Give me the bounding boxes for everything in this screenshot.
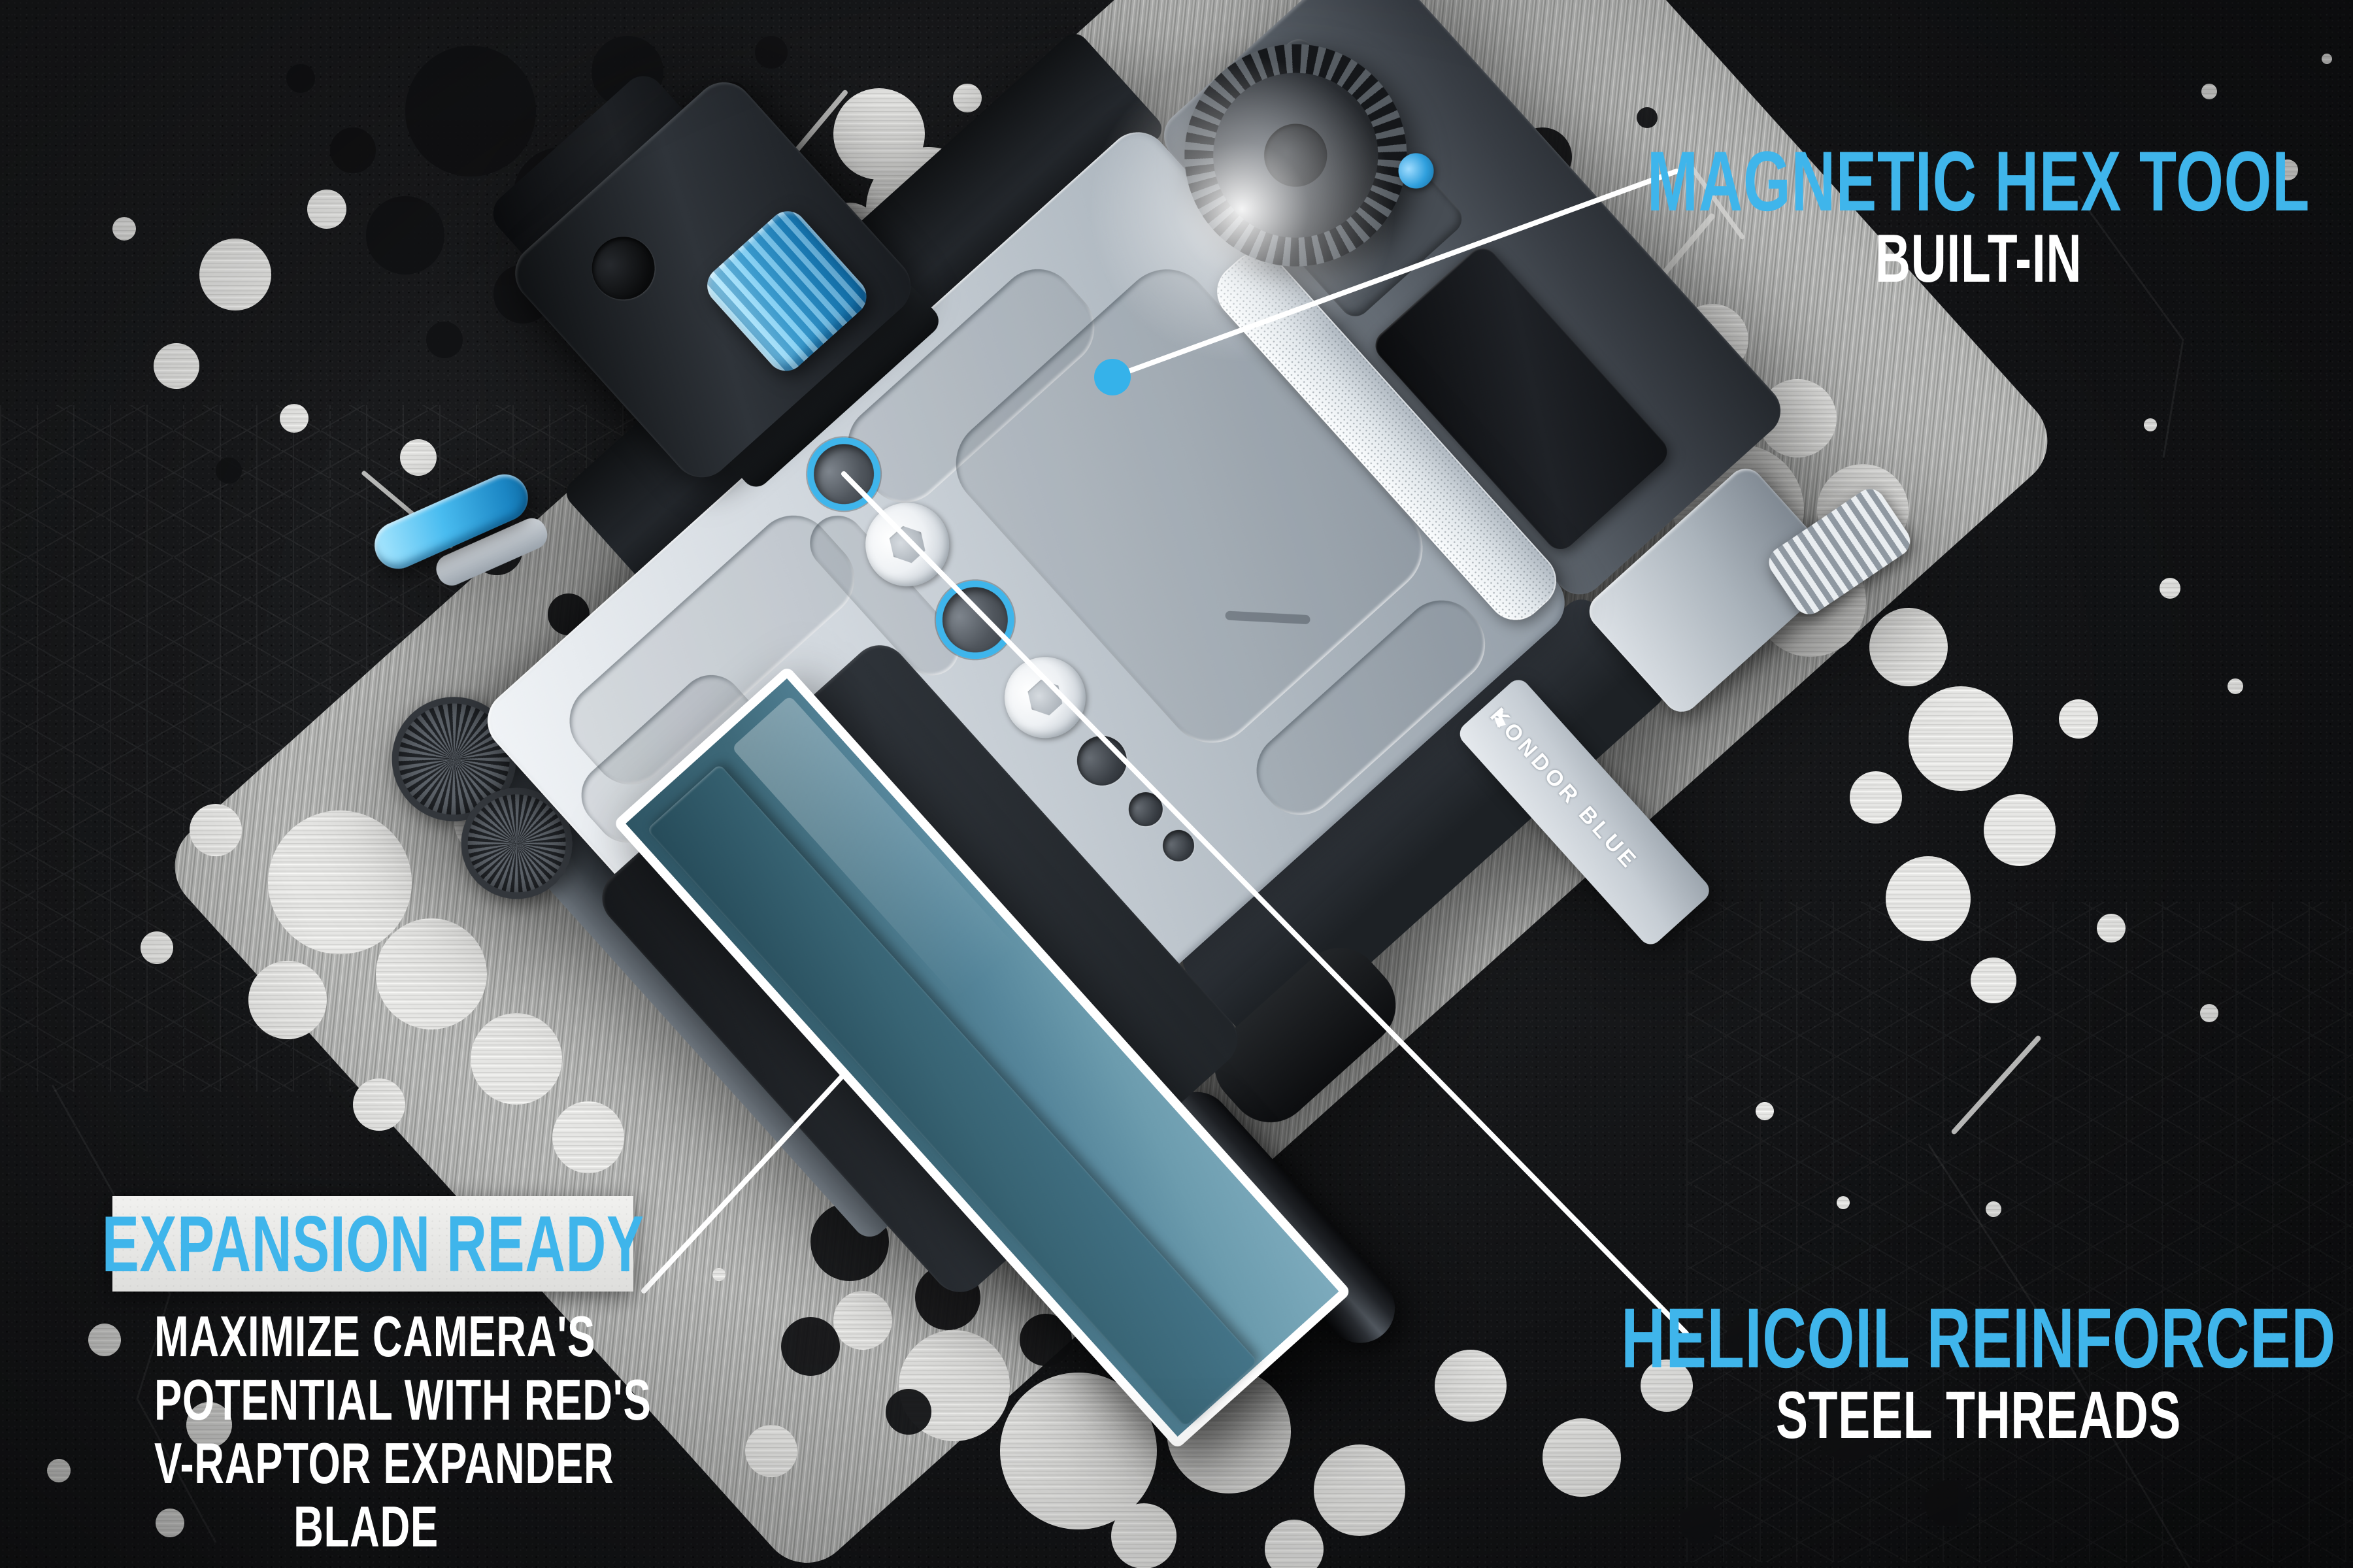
expansion-title: EXPANSION READY — [102, 1204, 644, 1284]
expansion-body-line: MAXIMIZE CAMERA'S — [154, 1305, 578, 1368]
magnetic-hex-subtitle: BUILT-IN — [1875, 225, 2082, 293]
page-root: KONDOR BLUE MAGNETIC HEX TOOL BUILT-IN E… — [0, 0, 2353, 1568]
magnetic-hex-indicator-dot — [1094, 359, 1131, 395]
magnetic-callout-line — [1112, 171, 1677, 377]
helicoil-subtitle: STEEL THREADS — [1776, 1382, 2181, 1448]
helicoil-title: HELICOIL REINFORCED — [1621, 1295, 2336, 1380]
magnetic-hex-title: MAGNETIC HEX TOOL — [1647, 139, 2310, 224]
expansion-body-line: V-RAPTOR EXPANDER — [154, 1431, 578, 1495]
expansion-body-line: POTENTIAL WITH RED'S — [154, 1368, 578, 1431]
expansion-callout-line — [644, 1075, 843, 1291]
expansion-body-line: BLADE — [154, 1495, 578, 1558]
helicoil-callout-line — [844, 474, 1686, 1333]
expansion-body: MAXIMIZE CAMERA'S POTENTIAL WITH RED'S V… — [72, 1305, 660, 1558]
expansion-title-box: EXPANSION READY — [112, 1196, 633, 1292]
